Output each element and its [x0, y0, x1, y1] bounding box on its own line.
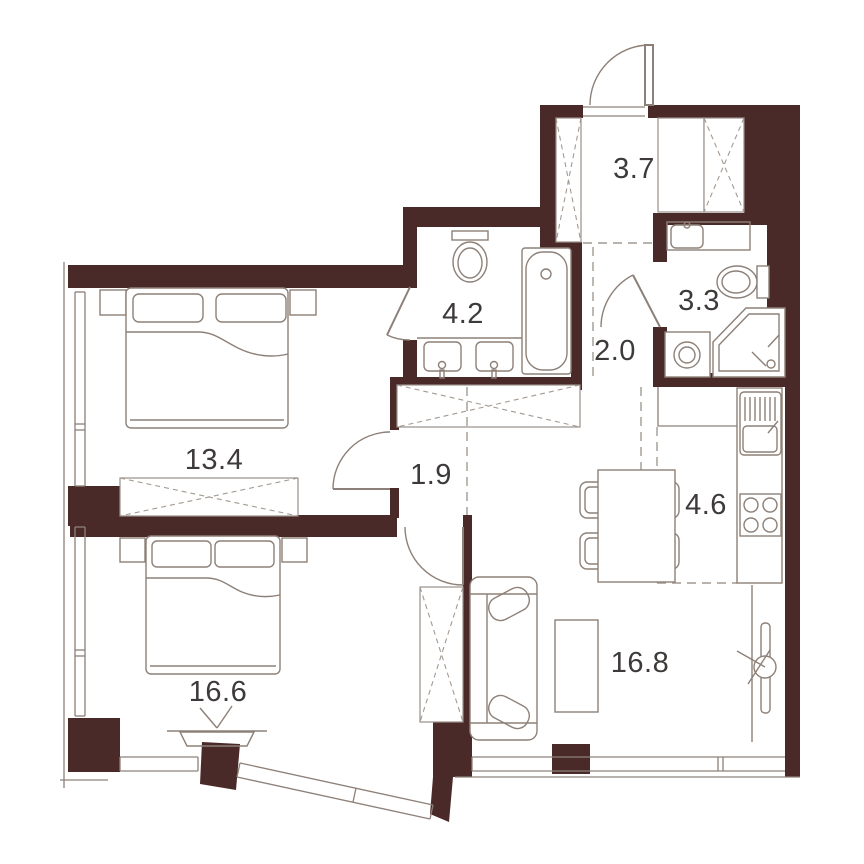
- double-bed: [126, 288, 288, 428]
- double-bed: [146, 536, 280, 674]
- entry-door-swing: [590, 45, 650, 105]
- tv: [737, 585, 776, 742]
- stove: [740, 494, 781, 536]
- wall-corner-bottom-left: [68, 718, 120, 772]
- label-entrance-hall: 3.7: [613, 153, 655, 185]
- label-bedroom-2: 16.6: [189, 676, 247, 708]
- shower-tray: [713, 308, 785, 377]
- label-arrow: [200, 706, 232, 728]
- bay-window-angled: [237, 763, 433, 819]
- wardrobe-hall-left: [556, 118, 581, 242]
- entry-door-leaf: [645, 45, 653, 105]
- nightstand: [290, 290, 316, 315]
- floor-plan: 3.7 4.2 3.3 2.0 13.4 1.9 4.6 16.6 16.8: [0, 0, 864, 864]
- door-bathroom-main: [387, 287, 410, 340]
- bathtub: [522, 248, 571, 374]
- wall-bathroom-right: [571, 250, 582, 382]
- kitchen-counter-return: [658, 387, 740, 426]
- coffee-table: [555, 620, 598, 712]
- floor-plan-drawing: 3.7 4.2 3.3 2.0 13.4 1.9 4.6 16.6 16.8: [0, 0, 864, 864]
- wall-bay-pier-left: [200, 742, 240, 790]
- dining-table: [598, 470, 675, 582]
- sofa: [470, 577, 537, 740]
- label-bedroom-1: 13.4: [185, 444, 243, 476]
- window-living: [455, 757, 800, 777]
- wardrobe-hall-right: [704, 118, 744, 212]
- wall-bay-pier-stub: [430, 777, 453, 822]
- wall-hall-chunk: [744, 118, 785, 213]
- window-bedroom2: [75, 527, 85, 716]
- label-bathroom-main: 4.2: [442, 298, 484, 330]
- double-sink: [417, 338, 522, 378]
- nightstand: [120, 538, 145, 562]
- label-living-room: 16.8: [611, 647, 669, 679]
- wall-right-outer: [785, 105, 800, 777]
- window-bedroom1: [75, 292, 85, 486]
- door-bedroom2: [405, 527, 463, 585]
- washing-machine: [665, 332, 710, 377]
- door-bedroom1: [333, 432, 390, 489]
- bedroom2-furniture: [120, 536, 307, 746]
- sink: [667, 222, 750, 250]
- wardrobe-bedroom1: [120, 478, 298, 516]
- wall-bathroom-top: [403, 207, 553, 227]
- nightstand: [282, 538, 307, 562]
- duct-shaft: [658, 118, 704, 212]
- entry-door: [583, 45, 653, 116]
- wall-top-right-of-door: [648, 105, 800, 118]
- toilet: [452, 231, 488, 282]
- wall-hall-left: [540, 105, 556, 250]
- wall-top-left-of-door: [540, 105, 583, 118]
- bathroom-main-fixtures: [417, 231, 571, 378]
- wardrobe-corridor: [397, 385, 580, 427]
- kitchen-fixtures: [737, 388, 782, 583]
- bedroom1-furniture: [100, 288, 316, 428]
- nightstand: [100, 290, 126, 315]
- kitchen-sink: [740, 392, 781, 455]
- toilet: [717, 266, 769, 298]
- wall-innerhall-lower: [390, 488, 399, 518]
- wall-bathroom-left-lower: [403, 340, 417, 377]
- label-inner-hall: 1.9: [410, 459, 452, 491]
- label-kitchen: 4.6: [685, 489, 727, 521]
- label-shower-room: 3.3: [678, 285, 720, 317]
- wall-bedroom1-top: [68, 265, 417, 288]
- wall-showerroom-left-upper: [653, 225, 667, 262]
- wardrobe-bedroom2: [420, 587, 463, 722]
- wall-bay-pier-right: [433, 722, 472, 777]
- door-shower-room: [601, 275, 660, 327]
- wall-living-window-pier: [552, 744, 590, 774]
- dining-set: [580, 470, 679, 582]
- wall-showerroom-top: [653, 213, 785, 225]
- label-corridor: 2.0: [594, 335, 636, 367]
